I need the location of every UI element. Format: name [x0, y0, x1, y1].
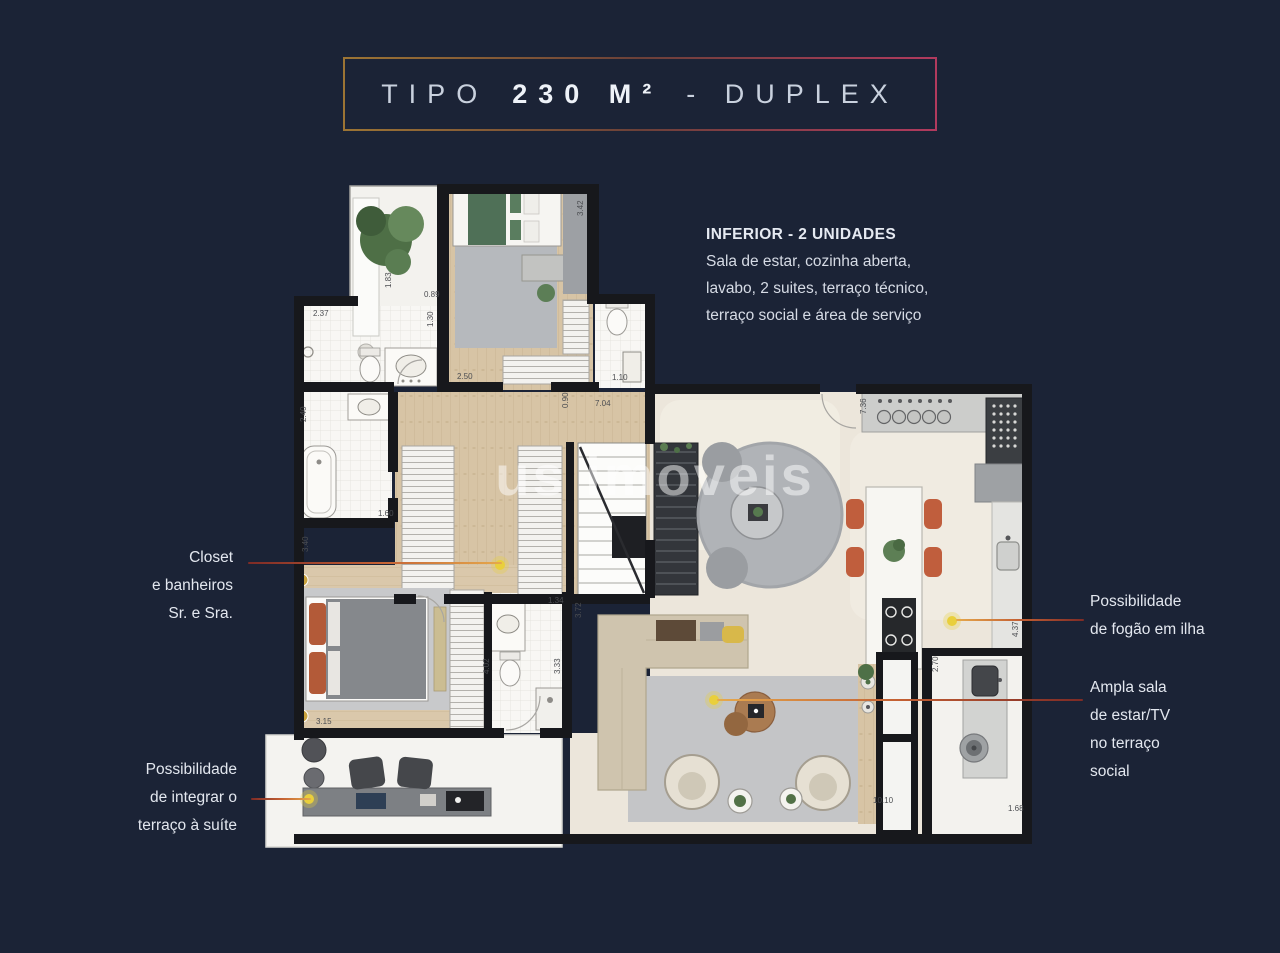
toilet	[500, 660, 520, 686]
callout-line-text: terraço à suíte	[60, 812, 237, 840]
laundry-sink	[972, 666, 998, 696]
wardrobe	[450, 590, 484, 732]
tv	[446, 791, 484, 811]
desk-chair	[537, 284, 555, 302]
dimension-label: 1.34	[548, 596, 564, 605]
dimension-label: 2.40	[299, 406, 308, 422]
callout-line-text: de integrar o	[60, 784, 237, 812]
dimension-label: 0.89	[424, 290, 440, 299]
watermark-text: us imoveis	[495, 444, 814, 507]
chair	[924, 499, 942, 529]
armchair	[796, 756, 850, 810]
island-stove	[882, 598, 916, 654]
callout-line-text: Closet	[60, 544, 233, 572]
callout-line-text: Possibilidade	[60, 756, 237, 784]
shower	[536, 688, 564, 730]
dimension-label: 7.36	[859, 398, 868, 414]
chair	[846, 499, 864, 529]
chair	[348, 756, 386, 790]
title-word-area: 230 M²	[512, 79, 662, 110]
callout-terrace-suite: Possibilidade de integrar o terraço à su…	[60, 756, 237, 840]
title-word-duplex: - DUPLEX	[686, 79, 899, 110]
title-banner: TIPO 230 M² - DUPLEX	[343, 57, 937, 131]
dimension-label: 3.33	[553, 658, 562, 674]
oven-tower	[986, 398, 1024, 464]
dimension-label: 0.90	[561, 392, 570, 408]
wardrobe	[503, 356, 589, 384]
page: { "title_box": { "word1": "TIPO", "word2…	[0, 0, 1280, 953]
callout-line-text: de fogão em ilha	[1090, 616, 1260, 644]
callout-target-dot	[947, 616, 957, 626]
callout-line-text: Sr. e Sra.	[60, 600, 233, 628]
callout-line-terrace-living	[717, 699, 1083, 701]
callout-line-closet	[248, 562, 502, 564]
callout-closet: Closet e banheiros Sr. e Sra.	[60, 544, 233, 628]
armchair	[665, 755, 719, 809]
wardrobe	[563, 300, 589, 354]
dimension-label: 7.04	[595, 399, 611, 408]
pouf	[302, 738, 326, 762]
callout-line-text: social	[1090, 758, 1240, 786]
dimension-label: 1.30	[426, 311, 435, 327]
callout-line-text: Possibilidade	[1090, 588, 1260, 616]
chair	[846, 547, 864, 577]
dimension-label: 2.70	[931, 656, 940, 672]
dimension-label: 4.37	[1011, 621, 1020, 637]
dimension-label: 1.60	[378, 509, 394, 518]
service-area	[960, 660, 1007, 778]
dimension-label: 1.83	[384, 272, 393, 288]
dimension-label: 10.10	[873, 796, 894, 805]
dimension-label: 3.40	[301, 536, 310, 552]
kitchen-sink	[997, 542, 1019, 570]
dimension-label: 3.42	[576, 200, 585, 216]
floor-plan: us imoveis 2.371.830.891.303.422.507.040…	[260, 176, 1040, 862]
callout-line-text: no terraço	[1090, 730, 1240, 758]
callout-island-stove: Possibilidade de fogão em ilha	[1090, 588, 1260, 644]
dimension-label: 2.37	[313, 309, 329, 318]
toilet	[360, 356, 380, 382]
title-word-tipo: TIPO	[381, 79, 488, 110]
dimension-label: 1.68	[1008, 804, 1024, 813]
chair	[397, 756, 434, 789]
dimension-label: 2.50	[457, 372, 473, 381]
callout-line-text: de estar/TV	[1090, 702, 1240, 730]
sink	[358, 399, 380, 415]
toilet	[607, 309, 627, 335]
callout-terrace-living: Ampla sala de estar/TV no terraço social	[1090, 674, 1240, 786]
chair	[924, 547, 942, 577]
callout-line-island-stove	[956, 619, 1084, 621]
wardrobe	[402, 446, 454, 596]
pouf	[304, 768, 324, 788]
callout-line-text: Ampla sala	[1090, 674, 1240, 702]
dimension-label: 3.72	[574, 602, 583, 618]
sink	[497, 615, 519, 633]
dimension-label: 1.10	[612, 373, 628, 382]
dimension-label: 3.15	[316, 717, 332, 726]
callout-line-text: e banheiros	[60, 572, 233, 600]
dimension-label: 4.02	[482, 658, 491, 674]
callout-line-terrace-suite	[251, 798, 311, 800]
